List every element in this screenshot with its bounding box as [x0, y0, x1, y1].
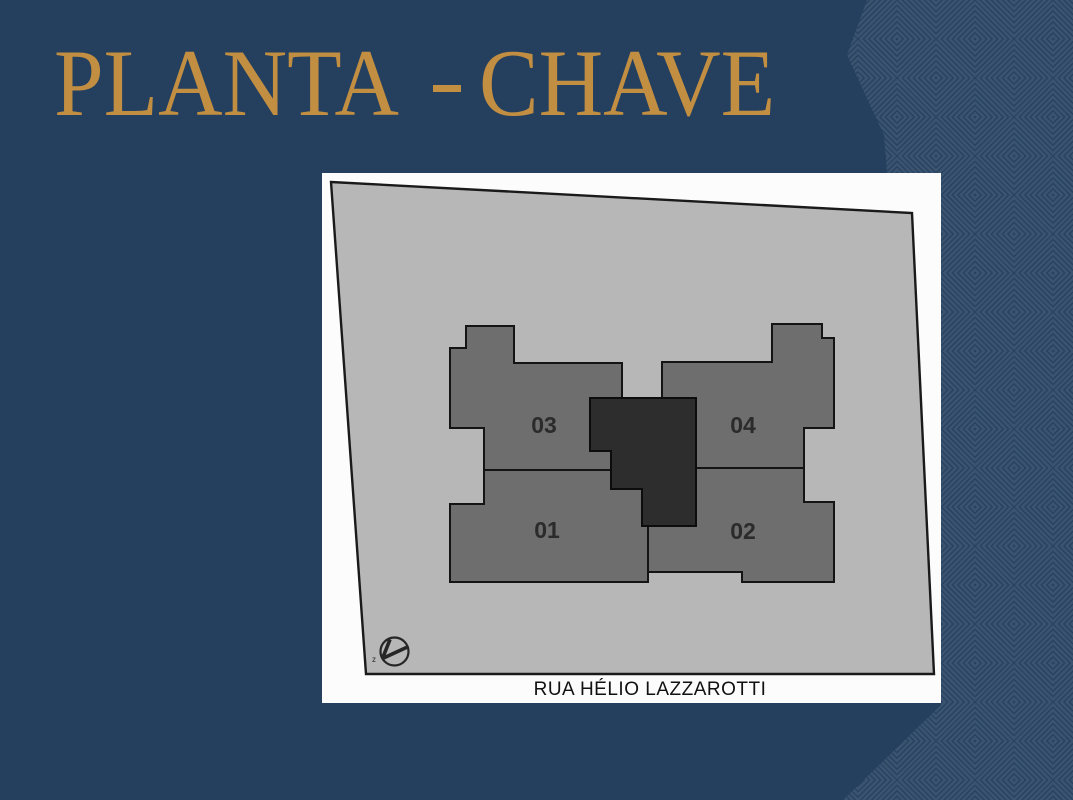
svg-text:04: 04: [730, 412, 756, 438]
svg-text:RUA HÉLIO LAZZAROTTI: RUA HÉLIO LAZZAROTTI: [534, 679, 767, 700]
svg-text:02: 02: [730, 518, 756, 544]
svg-text:01: 01: [534, 517, 560, 543]
svg-text:z: z: [372, 655, 376, 664]
svg-text:03: 03: [531, 412, 557, 438]
